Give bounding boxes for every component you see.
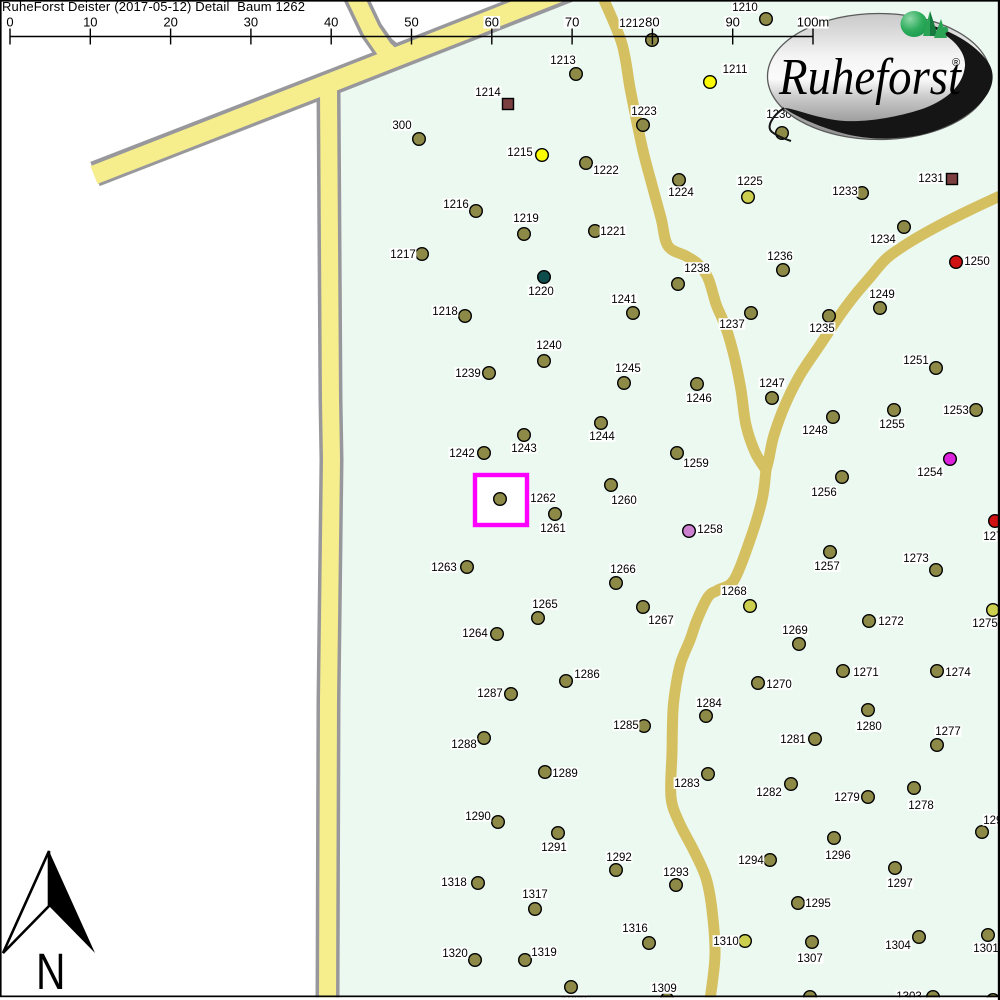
svg-text:N: N: [36, 943, 65, 1000]
svg-text:1290: 1290: [465, 811, 491, 823]
svg-text:10: 10: [83, 15, 97, 30]
svg-text:40: 40: [324, 15, 338, 30]
svg-text:1293: 1293: [663, 867, 689, 879]
svg-text:1275: 1275: [972, 618, 998, 630]
svg-text:1249: 1249: [869, 289, 895, 301]
svg-text:1309: 1309: [651, 983, 677, 995]
svg-text:1238: 1238: [684, 263, 710, 275]
svg-text:1221: 1221: [600, 226, 626, 238]
svg-text:50: 50: [404, 15, 418, 30]
svg-text:1319: 1319: [531, 947, 557, 959]
svg-text:1284: 1284: [696, 698, 722, 710]
svg-text:1268: 1268: [721, 586, 747, 598]
svg-text:RuheForst Deister (2017-05-12): RuheForst Deister (2017-05-12) Detail Ba…: [2, 0, 305, 14]
svg-text:1270: 1270: [766, 679, 792, 691]
svg-text:1254: 1254: [917, 467, 943, 479]
svg-text:1246: 1246: [686, 393, 712, 405]
svg-text:1215: 1215: [507, 147, 533, 159]
svg-text:1307: 1307: [797, 953, 823, 965]
svg-text:1235: 1235: [809, 323, 835, 335]
svg-text:1261: 1261: [540, 523, 566, 535]
svg-text:20: 20: [163, 15, 177, 30]
svg-text:1297: 1297: [887, 878, 913, 890]
svg-text:1269: 1269: [782, 625, 808, 637]
svg-text:1213: 1213: [550, 55, 576, 67]
svg-text:1241: 1241: [611, 294, 637, 306]
svg-text:1211: 1211: [723, 64, 748, 76]
svg-text:1271: 1271: [853, 667, 879, 679]
svg-text:1278: 1278: [908, 800, 934, 812]
svg-text:1283: 1283: [674, 778, 700, 790]
svg-text:90: 90: [725, 15, 739, 30]
svg-text:1260: 1260: [611, 495, 637, 507]
svg-text:1282: 1282: [756, 787, 782, 799]
svg-text:1304: 1304: [885, 940, 911, 952]
svg-text:1259: 1259: [683, 458, 709, 470]
svg-text:1225: 1225: [737, 176, 763, 188]
svg-text:1301: 1301: [973, 943, 999, 955]
svg-text:60: 60: [485, 15, 499, 30]
svg-text:1243: 1243: [511, 443, 537, 455]
svg-text:1288: 1288: [451, 739, 477, 751]
svg-text:100m: 100m: [797, 15, 830, 30]
svg-text:1265: 1265: [532, 599, 558, 611]
svg-text:1219: 1219: [513, 213, 539, 225]
svg-text:1218: 1218: [432, 306, 458, 318]
svg-text:1266: 1266: [610, 564, 636, 576]
svg-text:Ruheforst: Ruheforst: [778, 49, 962, 106]
svg-text:1285: 1285: [613, 720, 639, 732]
svg-text:1220: 1220: [528, 286, 554, 298]
svg-text:1273: 1273: [903, 553, 929, 565]
svg-text:1279: 1279: [834, 792, 860, 804]
svg-text:1212: 1212: [619, 18, 645, 30]
svg-text:1286: 1286: [574, 669, 600, 681]
svg-text:1317: 1317: [522, 889, 548, 901]
svg-text:1239: 1239: [455, 368, 481, 380]
svg-text:1233: 1233: [832, 186, 858, 198]
svg-text:1320: 1320: [442, 948, 468, 960]
svg-text:1216: 1216: [443, 199, 469, 211]
svg-text:1256: 1256: [811, 487, 837, 499]
svg-text:1316: 1316: [622, 923, 648, 935]
svg-text:1247: 1247: [759, 378, 785, 390]
svg-text:1245: 1245: [615, 363, 641, 375]
svg-text:0: 0: [6, 15, 13, 30]
svg-text:300: 300: [392, 120, 411, 132]
svg-text:1242: 1242: [449, 448, 475, 460]
svg-text:1236: 1236: [767, 251, 793, 263]
svg-text:1250: 1250: [964, 256, 990, 268]
svg-text:1276: 1276: [983, 531, 1000, 543]
svg-text:1223: 1223: [631, 106, 657, 118]
svg-text:1210: 1210: [732, 2, 758, 14]
svg-text:1251: 1251: [903, 355, 929, 367]
svg-text:1294: 1294: [738, 855, 764, 867]
svg-text:70: 70: [565, 15, 579, 30]
svg-text:1214: 1214: [475, 87, 501, 99]
svg-text:80: 80: [645, 15, 659, 30]
svg-text:1289: 1289: [552, 768, 578, 780]
svg-text:1258: 1258: [697, 524, 723, 536]
svg-text:1224: 1224: [668, 187, 694, 199]
svg-text:1248: 1248: [802, 425, 828, 437]
svg-text:1280: 1280: [856, 721, 882, 733]
svg-text:1274: 1274: [945, 667, 971, 679]
svg-text:1295: 1295: [805, 898, 831, 910]
svg-text:1253: 1253: [943, 405, 969, 417]
svg-text:1255: 1255: [879, 419, 905, 431]
svg-text:1240: 1240: [536, 340, 562, 352]
svg-text:1292: 1292: [606, 852, 632, 864]
svg-text:1287: 1287: [477, 688, 503, 700]
svg-text:1298: 1298: [983, 815, 1000, 827]
svg-text:1231: 1231: [918, 173, 944, 185]
svg-text:1237: 1237: [719, 319, 745, 331]
svg-text:1262: 1262: [530, 493, 556, 505]
svg-text:1222: 1222: [593, 165, 619, 177]
svg-text:1310: 1310: [713, 936, 739, 948]
svg-text:1318: 1318: [441, 877, 467, 889]
svg-text:1291: 1291: [541, 842, 567, 854]
svg-text:1264: 1264: [462, 628, 488, 640]
svg-text:1217: 1217: [390, 249, 416, 261]
svg-text:1281: 1281: [780, 734, 806, 746]
svg-text:®: ®: [952, 57, 960, 69]
svg-text:1272: 1272: [878, 616, 904, 628]
svg-text:1296: 1296: [825, 850, 851, 862]
svg-text:30: 30: [244, 15, 258, 30]
svg-text:1277: 1277: [935, 726, 961, 738]
svg-text:1267: 1267: [648, 615, 674, 627]
svg-text:1257: 1257: [814, 561, 840, 573]
svg-text:1263: 1263: [431, 562, 457, 574]
svg-text:1234: 1234: [870, 234, 896, 246]
svg-text:1244: 1244: [589, 431, 615, 443]
